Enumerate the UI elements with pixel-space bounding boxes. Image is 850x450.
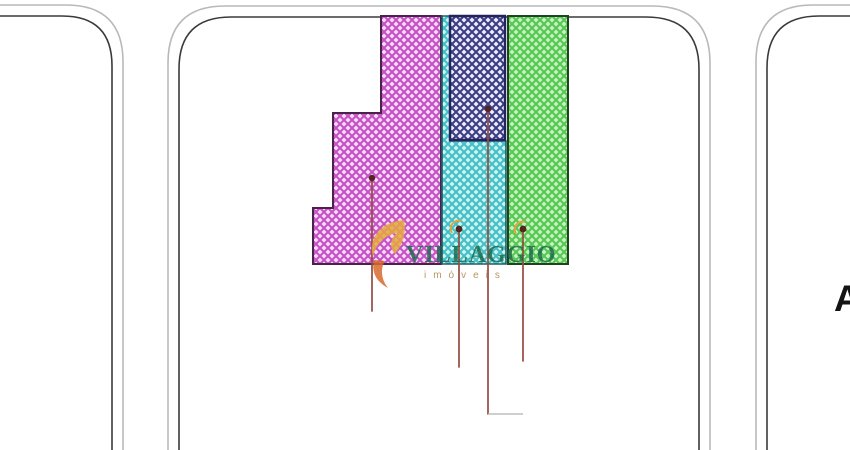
lots <box>313 16 568 264</box>
left-block-outer-outline <box>0 5 123 450</box>
left-block-inner-outline <box>0 16 112 450</box>
right-block-inner-outline <box>767 16 850 450</box>
plat-map-svg <box>0 0 850 450</box>
cyan-lot-pin-dot <box>456 226 463 233</box>
navy-lot-region <box>450 16 505 140</box>
plat-map-canvas: VILLAGGIO imóveis A <box>0 0 850 450</box>
navy-lot-pin-dot <box>485 106 491 112</box>
magenta-lot-region <box>313 16 441 264</box>
right-block-outer-outline <box>756 5 850 450</box>
green-lot-region <box>508 16 568 264</box>
magenta-lot-pin-dot <box>369 175 375 181</box>
street-label-a: A <box>834 278 850 320</box>
green-lot-pin-dot <box>520 226 527 233</box>
